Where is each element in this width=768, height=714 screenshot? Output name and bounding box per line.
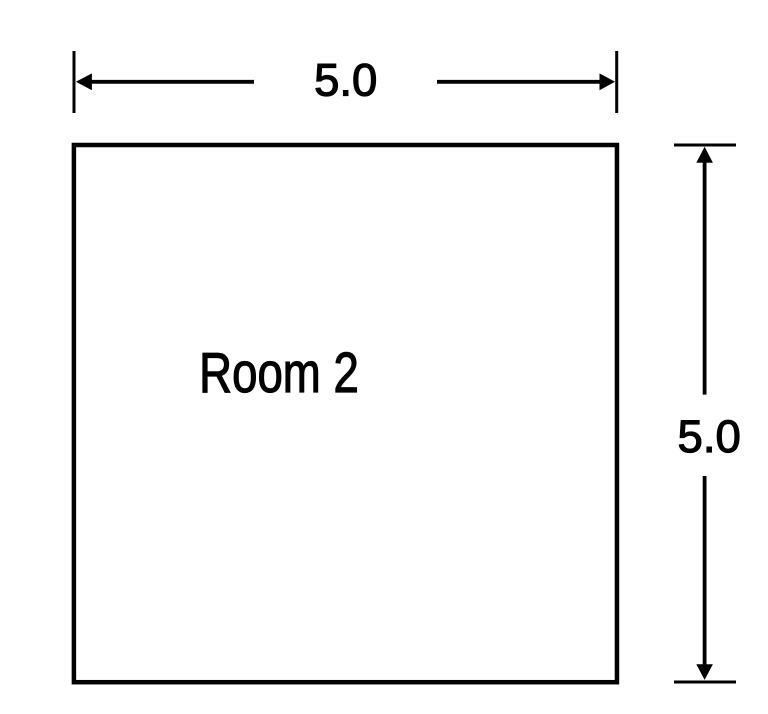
svg-text:Room 2: Room 2 <box>199 340 359 404</box>
svg-text:5.0: 5.0 <box>678 411 741 462</box>
svg-text:5.0: 5.0 <box>314 55 377 106</box>
